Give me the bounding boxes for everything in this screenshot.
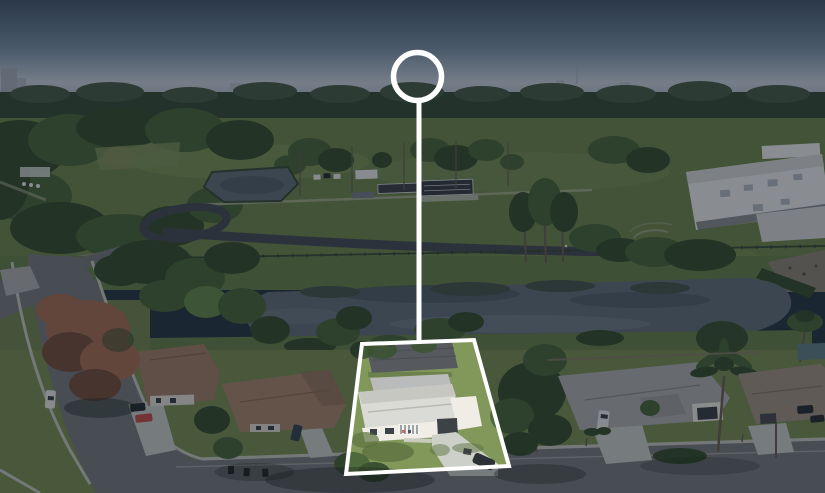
aerial-photo-canvas <box>0 0 825 493</box>
aerial-photo <box>0 0 825 493</box>
